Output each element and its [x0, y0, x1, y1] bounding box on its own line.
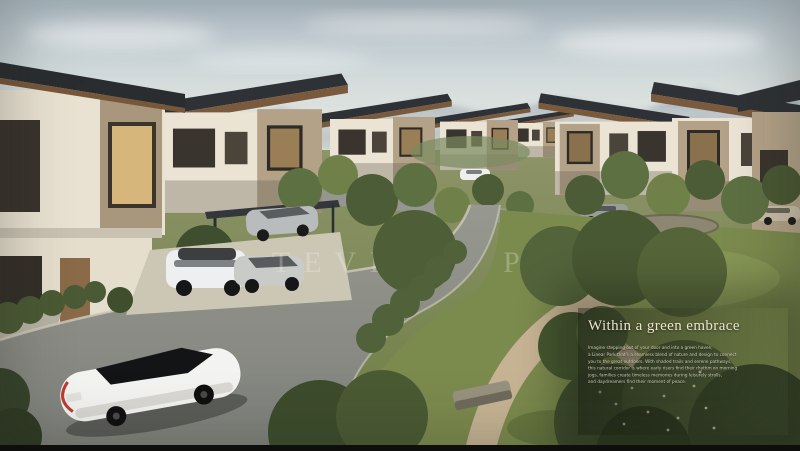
caption-body: Imagine stepping out of your door and in…	[588, 345, 768, 386]
caption-panel: Within a green embrace Imagine stepping …	[578, 308, 788, 435]
caption-heading: Within a green embrace	[588, 318, 778, 335]
brochure-image: TEVIYA PARK	[0, 0, 800, 451]
bottom-letterbox-bar	[0, 445, 800, 451]
caption-line: and daydreamers find their moment of pea…	[588, 379, 768, 386]
